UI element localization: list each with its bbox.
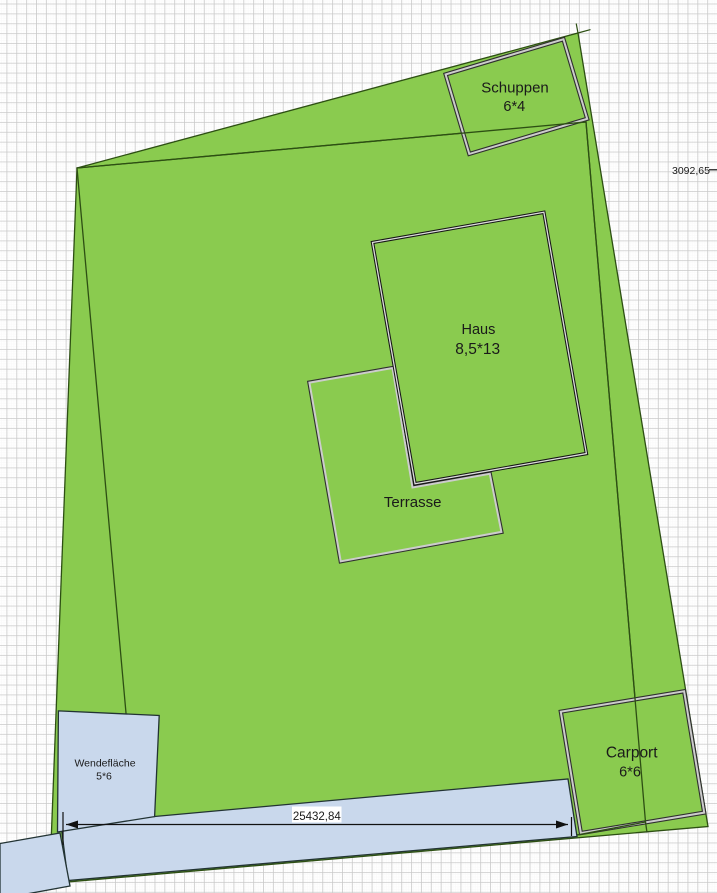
svg-text:Haus: Haus: [461, 322, 495, 338]
svg-text:25432,84: 25432,84: [293, 811, 342, 823]
svg-text:Carport: Carport: [606, 745, 658, 762]
svg-text:Wendefläche: Wendefläche: [74, 758, 135, 770]
svg-text:5*6: 5*6: [96, 770, 112, 782]
svg-text:8,5*13: 8,5*13: [455, 341, 500, 358]
svg-text:Schuppen: Schuppen: [481, 80, 549, 97]
svg-text:6*6: 6*6: [619, 765, 641, 781]
svg-text:6*4: 6*4: [503, 99, 525, 115]
svg-text:Terrasse: Terrasse: [384, 494, 442, 511]
svg-text:3092,65: 3092,65: [672, 165, 710, 177]
